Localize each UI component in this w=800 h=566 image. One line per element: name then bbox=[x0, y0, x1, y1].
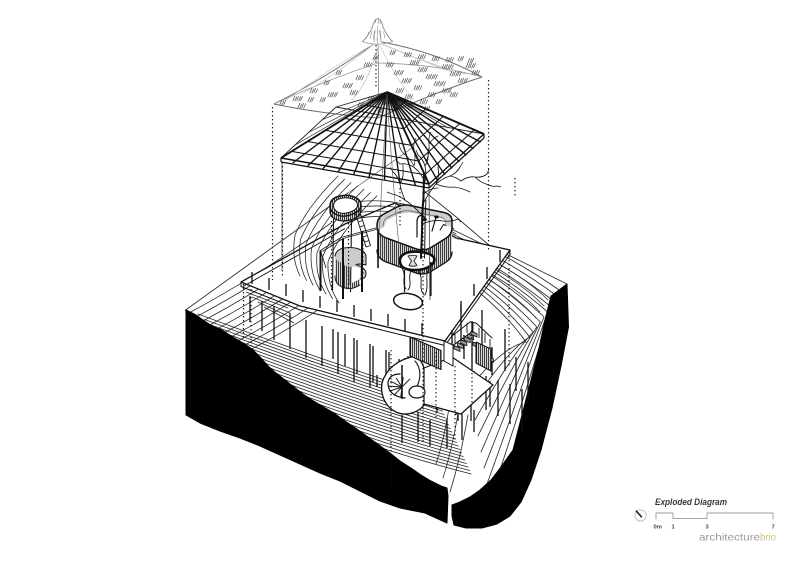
svg-text:0m: 0m bbox=[654, 525, 662, 531]
svg-text:7: 7 bbox=[772, 525, 775, 531]
svg-text:architecture: architecture bbox=[699, 532, 760, 544]
svg-text:brio: brio bbox=[760, 532, 776, 544]
svg-text:Exploded Diagram: Exploded Diagram bbox=[655, 497, 727, 508]
